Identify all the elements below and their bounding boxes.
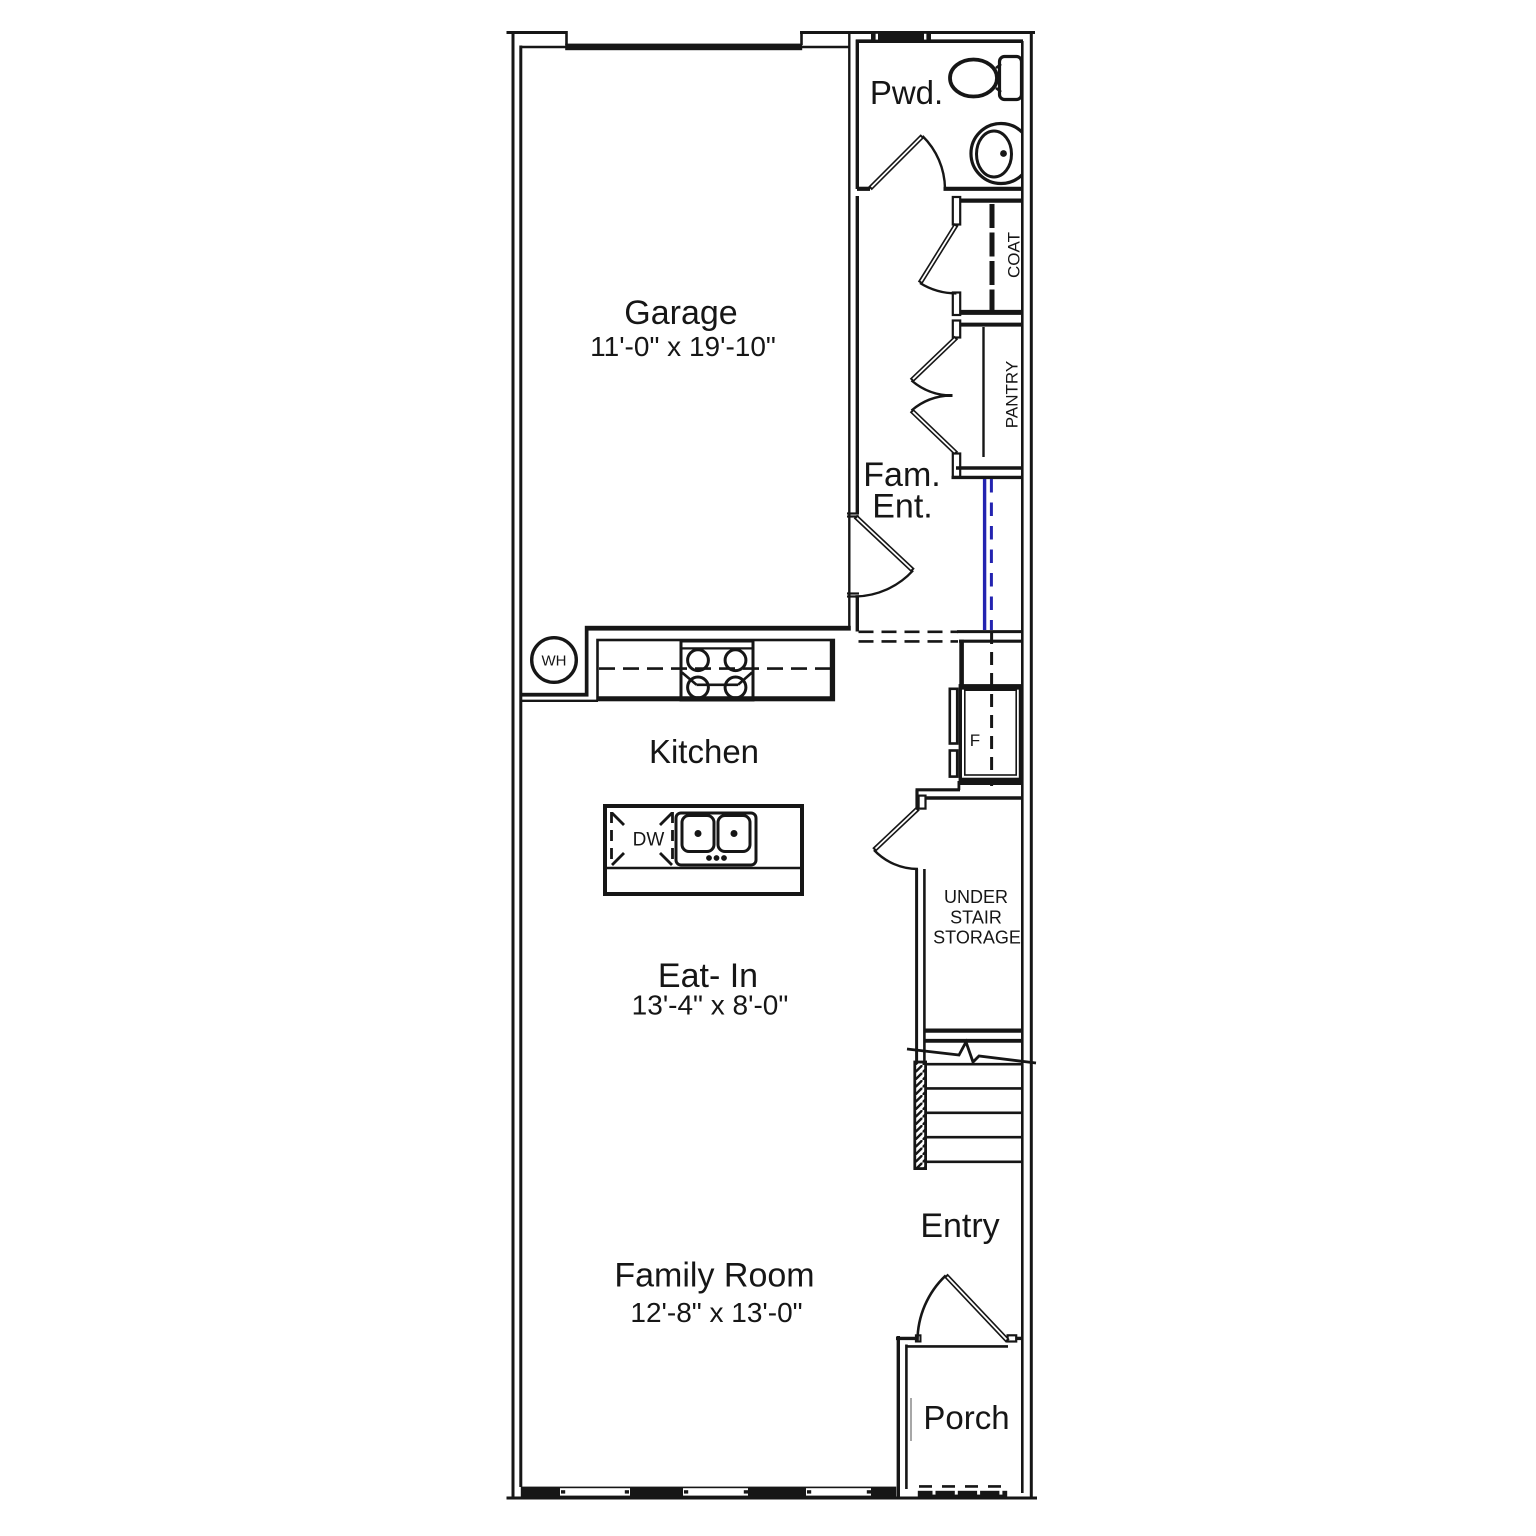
svg-text:Family Room: Family Room	[614, 1257, 814, 1295]
svg-text:STORAGE: STORAGE	[933, 928, 1021, 948]
svg-text:PANTRY: PANTRY	[1003, 361, 1022, 428]
svg-text:WH: WH	[542, 652, 567, 669]
svg-text:Pwd.: Pwd.	[870, 74, 943, 111]
svg-text:F: F	[970, 731, 980, 750]
svg-text:13'-4" x 8'-0": 13'-4" x 8'-0"	[632, 990, 789, 1021]
svg-text:DW: DW	[633, 830, 665, 851]
svg-text:Entry: Entry	[920, 1207, 999, 1245]
svg-text:UNDER: UNDER	[944, 887, 1008, 907]
svg-text:11'-0" x 19'-10": 11'-0" x 19'-10"	[590, 331, 776, 362]
svg-text:Garage: Garage	[624, 294, 737, 332]
svg-text:12'-8" x 13'-0": 12'-8" x 13'-0"	[630, 1297, 802, 1328]
svg-text:COAT: COAT	[1005, 232, 1024, 278]
svg-text:Porch: Porch	[923, 1399, 1009, 1436]
svg-text:Ent.: Ent.	[872, 488, 932, 526]
svg-text:Kitchen: Kitchen	[649, 733, 759, 770]
svg-text:STAIR: STAIR	[950, 908, 1002, 928]
